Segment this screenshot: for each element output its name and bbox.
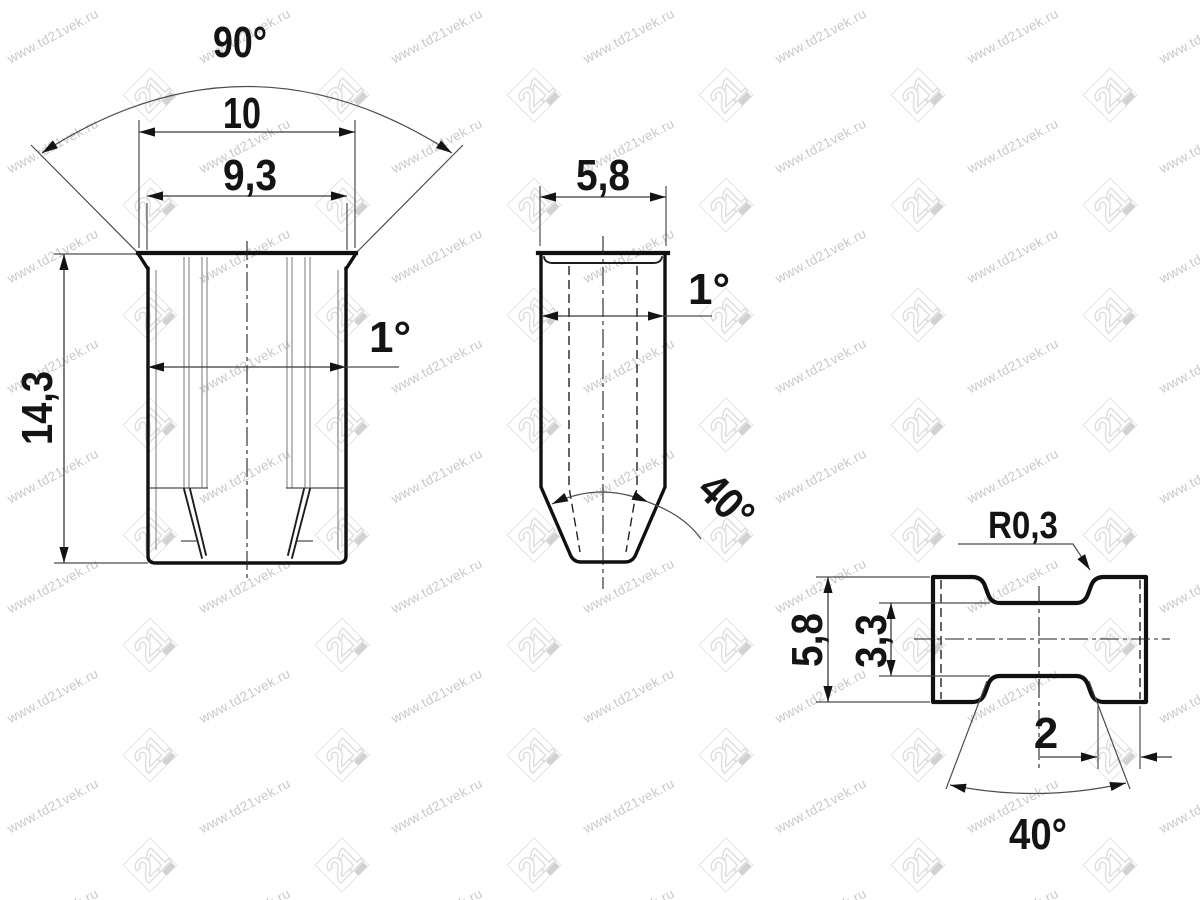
angle-arc (552, 492, 648, 504)
section-view: R0,3 5,8 3,3 (783, 505, 1172, 859)
dim-slot-height-label: 3,3 (847, 614, 896, 668)
dim-step-width: 2 (1034, 706, 1172, 769)
dim-taper-angle-label: 1° (369, 313, 411, 362)
dim-fillet-radius-label: R0,3 (988, 505, 1058, 547)
dim-fillet-radius: R0,3 (958, 505, 1090, 570)
dim-body-width-label: 9,3 (223, 151, 277, 200)
dim-head-angle-label: 90° (213, 18, 267, 67)
head-chamfer-left (139, 255, 148, 269)
dim-taper-angle: 1° (542, 265, 730, 316)
dim-height: 14,3 (13, 254, 148, 563)
dim-taper-angle-label: 1° (688, 265, 730, 314)
dim-tip-angle-label: 40° (688, 464, 764, 540)
countersink-line-left (31, 145, 139, 254)
hidden-bore-line (626, 266, 637, 552)
front-view: 90° 10 9,3 14,3 (13, 18, 463, 581)
countersink-line-right (355, 145, 463, 254)
dim-outer-height-label: 5,8 (783, 613, 832, 667)
drawing-layer: 90° 10 9,3 14,3 (0, 0, 1200, 900)
extension-line (54, 254, 148, 563)
side-view: 5,8 1° 40° (538, 151, 764, 589)
angle-arc (950, 783, 1126, 794)
dim-slot-angle-label: 40° (1009, 810, 1067, 859)
dim-slot-angle: 40° (946, 681, 1130, 859)
head-chamfer-right (346, 255, 355, 269)
hidden-bore-line (569, 266, 580, 552)
dim-width: 5,8 (540, 151, 666, 246)
dim-height-label: 14,3 (13, 371, 62, 445)
technical-drawing-page: www.td21vek.ruwww.td21vek.ruwww.td21vek.… (0, 0, 1200, 900)
dim-head-width-label: 10 (223, 89, 261, 138)
dim-width-label: 5,8 (576, 151, 630, 200)
dim-taper-angle: 1° (148, 313, 411, 367)
dim-body-width: 9,3 (147, 151, 347, 250)
dim-step-width-label: 2 (1034, 709, 1058, 758)
leader-line (958, 544, 1090, 570)
